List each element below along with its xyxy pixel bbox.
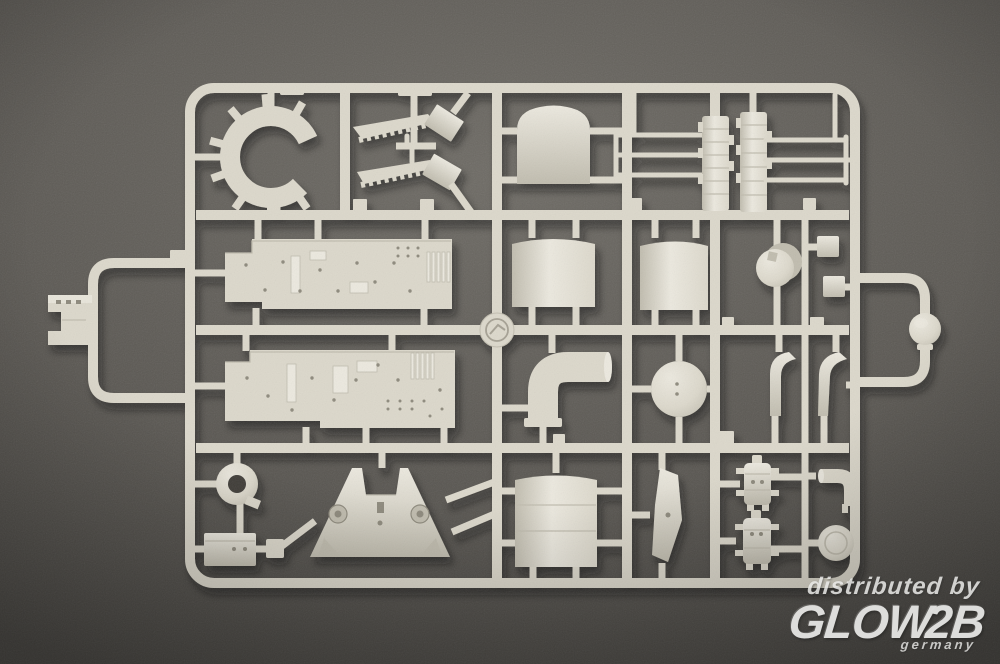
sprue-photo <box>0 0 1000 664</box>
photo-grain <box>0 0 1000 664</box>
watermark-country: germany <box>786 637 983 652</box>
watermark: distributed by GLOW2B germany <box>786 573 990 652</box>
photo-canvas: distributed by GLOW2B germany <box>0 0 1000 664</box>
watermark-brand: GLOW2B <box>787 601 987 642</box>
